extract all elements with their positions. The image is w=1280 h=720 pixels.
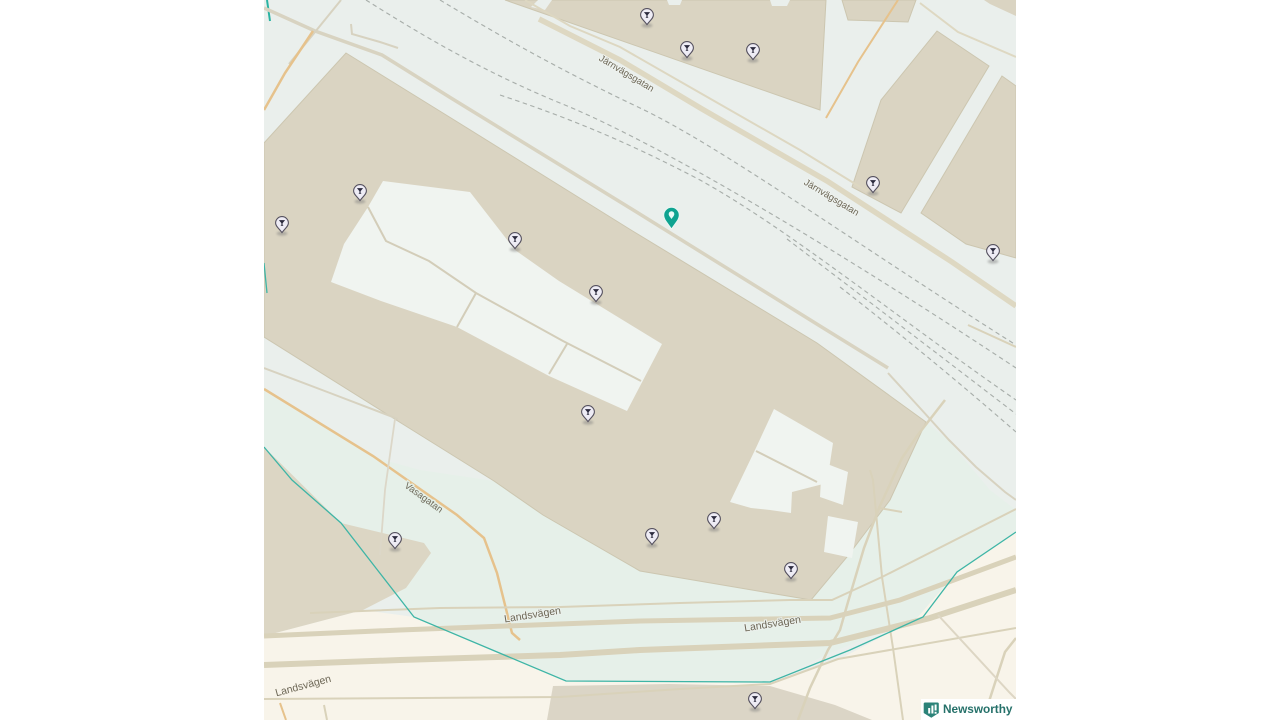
svg-text:Newsworthy: Newsworthy bbox=[943, 702, 1013, 716]
